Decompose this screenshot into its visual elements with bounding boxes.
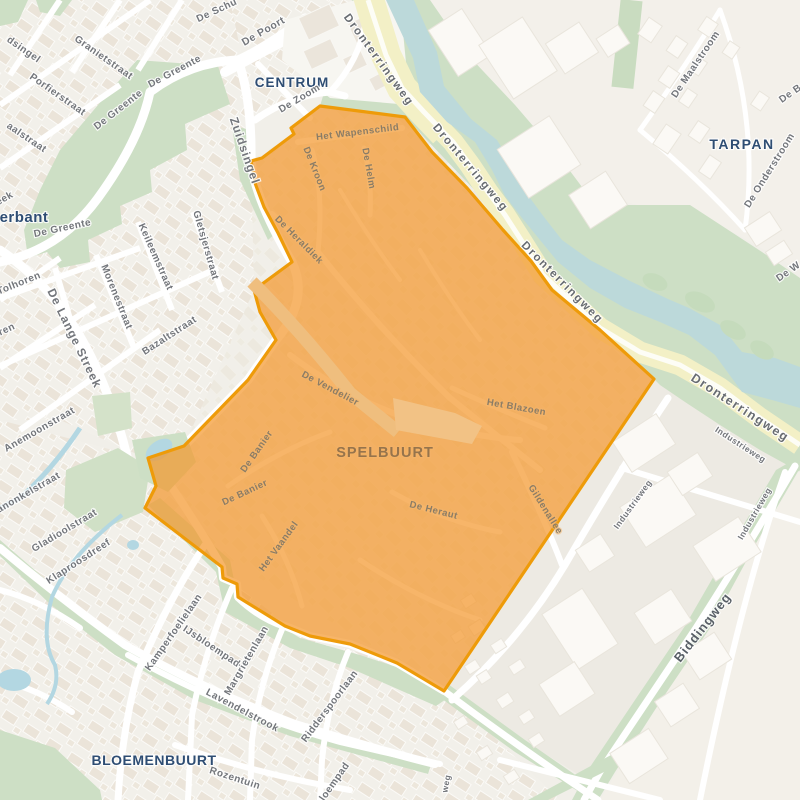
svg-text:BLOEMENBUURT: BLOEMENBUURT <box>92 752 217 768</box>
svg-text:TARPAN: TARPAN <box>709 136 774 152</box>
svg-text:SPELBUURT: SPELBUURT <box>336 445 434 461</box>
svg-text:erbant: erbant <box>0 209 48 226</box>
